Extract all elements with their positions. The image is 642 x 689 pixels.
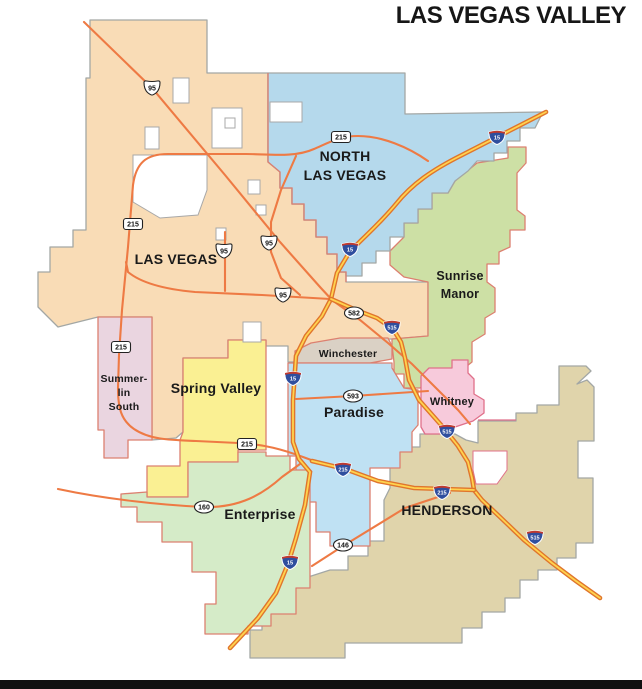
footer-bar [0,680,642,689]
page-title: LAS VEGAS VALLEY [396,2,626,30]
label-winchester: Winchester [319,348,378,360]
enclave [248,180,260,194]
svg-text:215: 215 [241,441,253,448]
enclave [225,118,235,128]
svg-text:95: 95 [265,240,273,247]
enclave [270,102,302,122]
label-las-vegas: LAS VEGAS [135,251,218,267]
svg-text:95: 95 [279,292,287,299]
svg-text:215: 215 [115,344,127,351]
svg-text:215: 215 [335,134,347,141]
svg-text:160: 160 [198,504,210,511]
svg-text:215: 215 [437,490,446,496]
label-summerlin-south-2: lin [118,387,131,399]
enclave [145,127,159,149]
enclave [133,155,207,218]
label-sunrise-manor-1: Sunrise [436,269,483,283]
svg-text:15: 15 [287,560,293,566]
label-north-las-vegas-2: LAS VEGAS [304,167,387,183]
label-henderson: HENDERSON [401,502,492,518]
label-paradise: Paradise [324,404,384,420]
cc-route-shield-215: 215 [112,342,131,353]
svg-text:15: 15 [494,135,500,141]
label-summerlin-south-3: South [109,401,140,413]
svg-text:146: 146 [337,542,349,549]
label-whitney: Whitney [430,396,475,408]
label-sunrise-manor-2: Manor [441,287,480,301]
svg-text:95: 95 [148,85,156,92]
svg-text:215: 215 [127,221,139,228]
map-container: 9595959521521521521558259316014615151515… [0,0,642,689]
cc-route-shield-215: 215 [238,439,257,450]
svg-text:215: 215 [338,467,347,473]
svg-text:95: 95 [220,248,228,255]
svg-text:15: 15 [347,247,353,253]
cc-route-shield-215: 215 [332,132,351,143]
svg-text:15: 15 [290,376,296,382]
label-enterprise: Enterprise [224,506,295,522]
svg-text:515: 515 [442,429,451,435]
label-summerlin-south-1: Summer- [101,373,148,385]
sr-route-shield-582: 582 [345,307,364,319]
label-spring-valley: Spring Valley [171,380,262,396]
sr-route-shield-146: 146 [334,539,353,551]
enclave [173,78,189,103]
sr-route-shield-160: 160 [195,501,214,513]
svg-text:515: 515 [530,535,539,541]
enclave [243,322,261,342]
sr-route-shield-593: 593 [344,390,363,402]
svg-text:593: 593 [347,393,359,400]
label-north-las-vegas-1: NORTH [320,148,371,164]
svg-text:582: 582 [348,310,360,317]
svg-text:515: 515 [387,325,396,331]
map-svg: 9595959521521521521558259316014615151515… [0,0,642,689]
cc-route-shield-215: 215 [124,219,143,230]
